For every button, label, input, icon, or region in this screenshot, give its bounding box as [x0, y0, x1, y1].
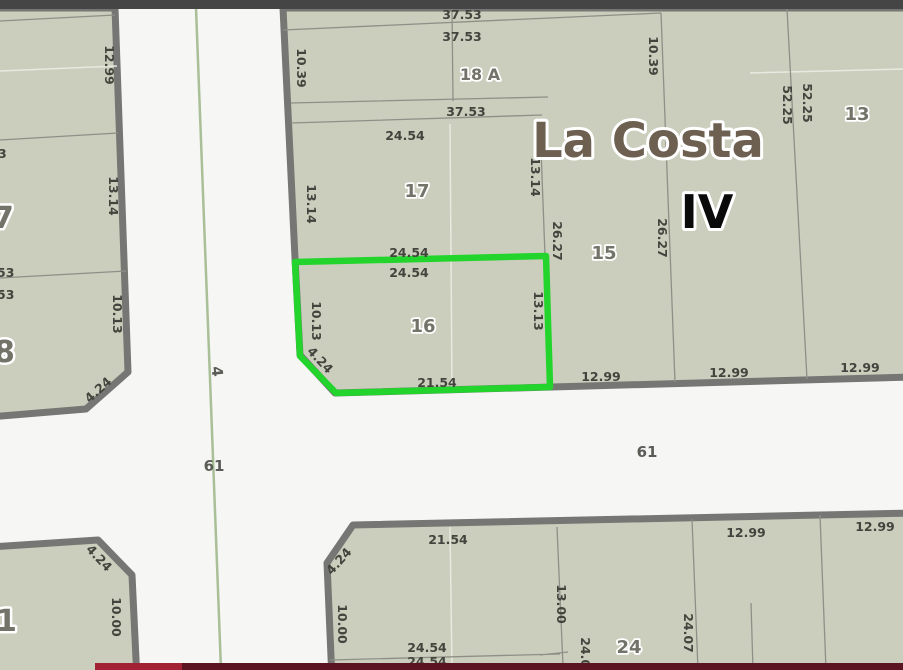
parcel-block-northeast[interactable] [283, 8, 903, 393]
measurement-label: 26.27 [550, 221, 565, 261]
measurement-label: 13.00 [554, 584, 569, 624]
measurement-label: 13.14 [106, 176, 121, 216]
measurement-label: 24.54 [407, 640, 447, 655]
measurement-label: 12.99 [726, 525, 766, 540]
measurement-label: 12.99 [102, 45, 117, 85]
measurement-label: 52.25 [800, 83, 815, 123]
measurement-label: 24.54 [389, 245, 429, 260]
measurement-label: 21.54 [417, 375, 457, 390]
street-number-61-left: 61 [204, 457, 225, 475]
region-section: IV [681, 185, 734, 239]
measurement-label: 10.13 [110, 294, 125, 334]
measurement-label: 10.39 [646, 36, 661, 76]
measurement-label: 10.13 [309, 301, 324, 341]
measurement-label: 26.27 [655, 218, 670, 258]
measurement-label: 12.99 [855, 519, 895, 534]
region-title: La Costa [532, 113, 764, 169]
measurement-label: 53 [0, 287, 14, 302]
measurement-label: 13.13 [531, 291, 546, 331]
measurement-label: 12.99 [581, 369, 621, 384]
measurement-label: 24.07 [681, 613, 696, 653]
bottom-bar-accent [95, 663, 182, 670]
measurement-label: 12.99 [840, 360, 880, 375]
measurement-label: 37.53 [446, 104, 486, 119]
measurement-label: 52.25 [780, 85, 795, 125]
measurement-label: 53 [0, 265, 14, 280]
parcel-label-15: 15 [591, 243, 616, 264]
map[interactable]: 37.53 37.53 10.39 37.53 24.54 13.14 13.1… [0, 0, 903, 670]
parcel-label-8: 8 [0, 335, 15, 370]
parcel-label-17: 17 [404, 181, 429, 202]
measurement-label: 10.39 [294, 48, 309, 88]
parcel-label-18a: 18 A [460, 65, 501, 84]
measurement-label: 21.54 [428, 532, 468, 547]
parcel-label-24: 24 [616, 637, 641, 658]
measurement-label: 24.54 [389, 265, 429, 280]
measurement-label: 10.00 [109, 597, 124, 637]
top-bar [0, 0, 903, 9]
parcel-label-16: 16 [410, 316, 435, 337]
parcel-label-7: 7 [0, 201, 14, 236]
measurement-label: 37.53 [442, 29, 482, 44]
measurement-label: 37.53 [442, 7, 482, 22]
parcel-label-1: 1 [0, 604, 17, 639]
measurement-label: 13.14 [304, 184, 319, 224]
street-number-61-right: 61 [637, 443, 658, 461]
measurement-label: 12.99 [709, 365, 749, 380]
bottom-bar [182, 663, 903, 670]
measurement-label: 3 [0, 146, 7, 161]
street-number-4: 4 [207, 365, 226, 377]
parcel-label-13: 13 [844, 104, 869, 125]
measurement-label: 10.00 [335, 604, 350, 644]
measurement-label: 24.54 [385, 128, 425, 143]
